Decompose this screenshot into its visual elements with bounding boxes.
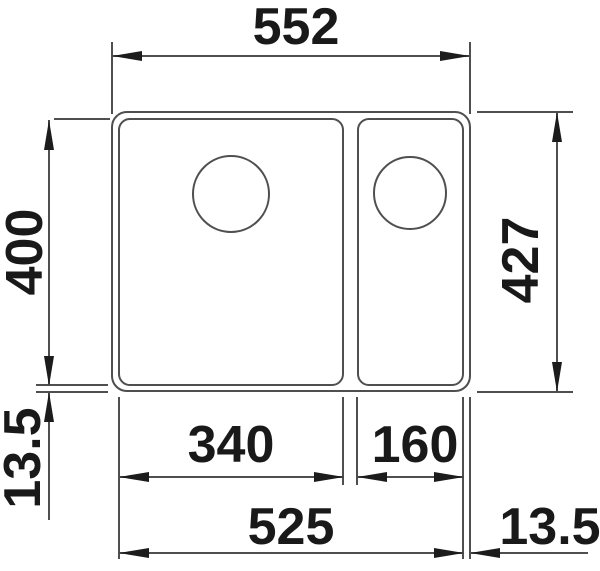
dim-line-main-bowl-width <box>119 476 344 478</box>
extension-line-bowl-top-left <box>54 118 110 120</box>
arrowhead-left-icon <box>112 51 142 61</box>
arrowhead-down-icon <box>44 356 54 386</box>
dim-label-left-height: 400 <box>0 209 51 296</box>
half-bowl-drain-circle <box>373 156 447 230</box>
arrowhead-left-icon <box>119 472 149 482</box>
arrowhead-up-icon <box>552 112 562 142</box>
dim-label-main-bowl-width: 340 <box>188 419 275 471</box>
dim-line-half-bowl-width <box>357 476 464 478</box>
arrowhead-right-icon <box>440 51 470 61</box>
arrowhead-left-icon <box>470 548 500 558</box>
dim-label-bottom-span: 525 <box>248 501 335 553</box>
arrowhead-down-icon <box>552 362 562 392</box>
arrowhead-left-icon <box>119 548 149 558</box>
extension-line-outer-right <box>469 397 471 559</box>
dim-label-half-bowl-width: 160 <box>372 419 459 471</box>
dim-label-right-rim: 13.5 <box>499 501 600 553</box>
dim-label-right-height: 427 <box>495 217 547 304</box>
arrowhead-right-icon <box>314 472 344 482</box>
dim-line-right-height <box>556 112 558 392</box>
dim-label-top-width: 552 <box>253 1 340 53</box>
main-bowl-drain-circle <box>192 155 270 233</box>
arrowhead-right-icon <box>434 548 464 558</box>
arrowhead-up-icon <box>44 120 54 150</box>
technical-drawing-canvas: 552 400 427 13.5 340 160 525 13.5 <box>0 0 600 571</box>
dim-label-left-rim: 13.5 <box>0 407 49 508</box>
